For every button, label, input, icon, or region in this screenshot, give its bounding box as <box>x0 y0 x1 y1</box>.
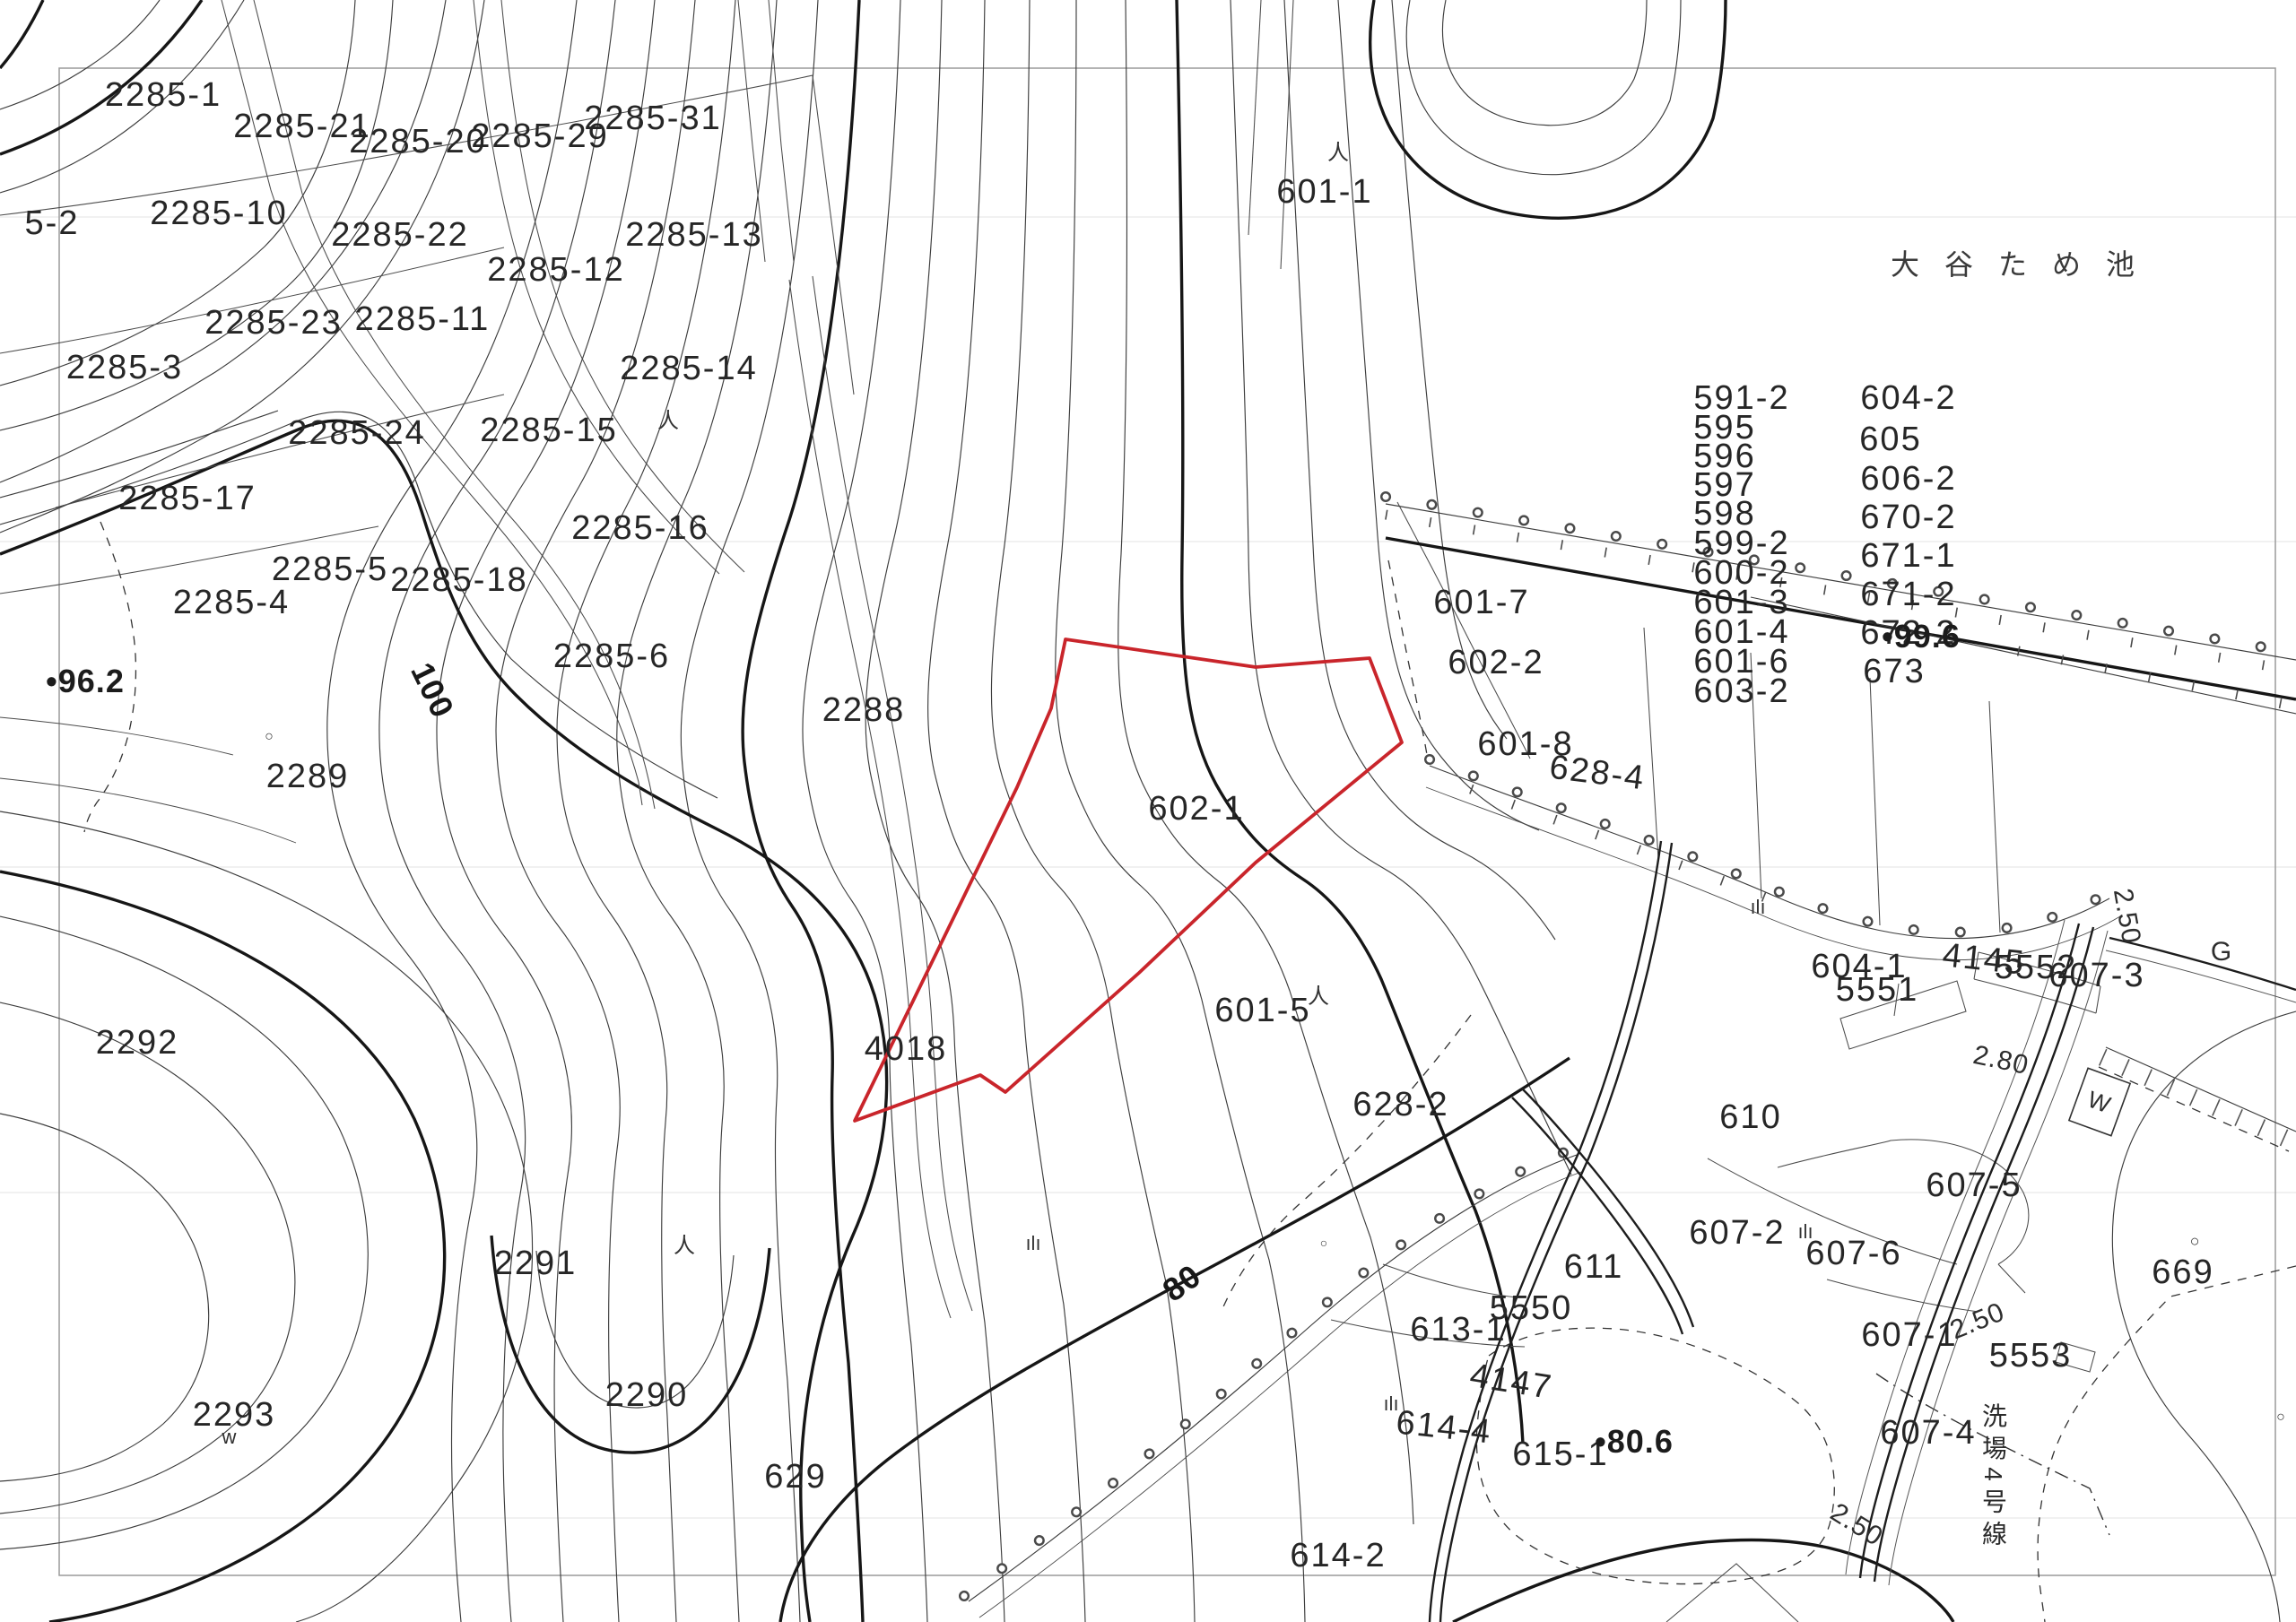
conifer-symbol: 人 <box>657 411 679 432</box>
conifer-symbol: 人 <box>674 1236 695 1257</box>
parcel-628-2: 628-2 <box>1352 1088 1448 1122</box>
spot-elevation-80-6: •80.6 <box>1595 1426 1674 1458</box>
parcel-601-5: 601-5 <box>1214 993 1310 1028</box>
pond-name: 大谷ため池 <box>1891 250 2160 279</box>
parcel-5553: 5553 <box>1989 1339 2073 1373</box>
parcel-2285-24: 2285-24 <box>288 416 425 450</box>
parcel-2285-13: 2285-13 <box>625 218 762 252</box>
small-w-mark: w <box>222 1427 238 1447</box>
parcel-628-4: 628-4 <box>1547 750 1647 796</box>
spot-elevation-99-6: •99.6 <box>1882 620 1961 653</box>
parcel-2288: 2288 <box>822 693 906 727</box>
contour-label-80: 80 <box>1157 1259 1206 1307</box>
spring-symbol: ○ <box>1320 1236 1327 1249</box>
parcel-614-2: 614-2 <box>1290 1539 1386 1573</box>
parcel-607-3: 607-3 <box>2048 958 2144 993</box>
parcel-611: 611 <box>1564 1250 1624 1284</box>
parcel-629: 629 <box>764 1460 826 1494</box>
parcel-2285-14: 2285-14 <box>620 351 757 386</box>
parcel-607-2: 607-2 <box>1689 1216 1785 1250</box>
label-layer: 2285-12285-212285-202285-292285-315-2228… <box>0 0 2296 1622</box>
parcel-669: 669 <box>2152 1255 2213 1289</box>
list-673: 673 <box>1863 655 1925 689</box>
contour-label-100: 100 <box>405 658 459 723</box>
parcel-601-1: 601-1 <box>1276 175 1372 209</box>
spring-symbol: ○ <box>265 730 274 744</box>
parcel-2285-12: 2285-12 <box>487 253 624 287</box>
list-606-2: 606-2 <box>1860 462 1956 496</box>
measure-2-50-a: 2.50 <box>2109 887 2144 947</box>
parcel-2285-20: 2285-20 <box>349 125 486 159</box>
parcel-2289: 2289 <box>266 759 350 794</box>
parcel-602-1: 602-1 <box>1148 792 1244 826</box>
parcel-2285-6: 2285-6 <box>553 639 670 673</box>
parcel-614-4: 614-4 <box>1395 1406 1494 1450</box>
parcel-2285-17: 2285-17 <box>118 481 256 516</box>
grass-symbol: ılı <box>1750 898 1765 917</box>
list-670-2: 670-2 <box>1860 500 1956 534</box>
parcel-607-6: 607-6 <box>1805 1236 1901 1271</box>
conifer-symbol: 人 <box>1327 143 1349 164</box>
parcel-2285-3: 2285-3 <box>66 351 183 385</box>
well-mark-w: W <box>2085 1087 2115 1116</box>
parcel-2290: 2290 <box>605 1378 689 1412</box>
parcel-2285-4: 2285-4 <box>173 585 290 620</box>
parcel-2285-1: 2285-1 <box>105 78 222 112</box>
parcel-2292: 2292 <box>96 1026 179 1060</box>
list-671-1: 671-1 <box>1860 539 1956 573</box>
grass-symbol: ılı <box>1383 1394 1398 1414</box>
measure-2-80: 2.80 <box>1970 1042 2031 1080</box>
parcel-607-5: 607-5 <box>1926 1168 2022 1202</box>
parcel-2291: 2291 <box>494 1246 578 1280</box>
list-671-2: 671-2 <box>1860 577 1956 612</box>
parcel-613-1: 613-1 <box>1410 1313 1506 1347</box>
spring-symbol: ○ <box>2190 1233 2200 1249</box>
parcel-610: 610 <box>1719 1100 1781 1134</box>
spring-symbol: ○ <box>2276 1410 2285 1425</box>
parcel-2285-23: 2285-23 <box>204 306 342 340</box>
parcel-2285-5: 2285-5 <box>272 552 388 586</box>
list-604-2: 604-2 <box>1860 381 1956 415</box>
parcel-2285-22: 2285-22 <box>331 218 468 252</box>
gate-mark-g: G <box>2211 939 2232 966</box>
cadastral-map-canvas: 2285-12285-212285-202285-292285-315-2228… <box>0 0 2296 1622</box>
parcel-5551: 5551 <box>1836 973 1919 1007</box>
measure-2-50-c: 2.50 <box>1826 1499 1888 1552</box>
parcel-2285-16: 2285-16 <box>571 511 709 545</box>
parcel-601-7: 601-7 <box>1433 585 1529 620</box>
road-name: 洗場4号線 <box>1980 1402 2005 1553</box>
parcel-2285-18: 2285-18 <box>390 563 527 597</box>
conifer-symbol: 人 <box>1308 986 1329 1008</box>
parcel-2285-15: 2285-15 <box>480 413 617 447</box>
parcel-602-2: 602-2 <box>1448 646 1544 680</box>
parcel-2285-11: 2285-11 <box>355 302 491 336</box>
parcel-607-1: 607-1 <box>1861 1318 1957 1352</box>
parcel-2285-31: 2285-31 <box>584 101 721 135</box>
list-605: 605 <box>1859 422 1921 456</box>
spot-elevation-96-2: •96.2 <box>46 665 125 698</box>
grass-symbol: ılı <box>1025 1234 1040 1253</box>
parcel-4147: 4147 <box>1467 1358 1554 1405</box>
parcel-607-4: 607-4 <box>1880 1416 1976 1450</box>
parcel-5-2: 5-2 <box>25 206 80 240</box>
parcel-2285-10: 2285-10 <box>150 196 287 230</box>
list-603-2: 603-2 <box>1693 674 1789 708</box>
grass-symbol: ılı <box>1797 1222 1813 1242</box>
parcel-4018: 4018 <box>865 1032 948 1066</box>
